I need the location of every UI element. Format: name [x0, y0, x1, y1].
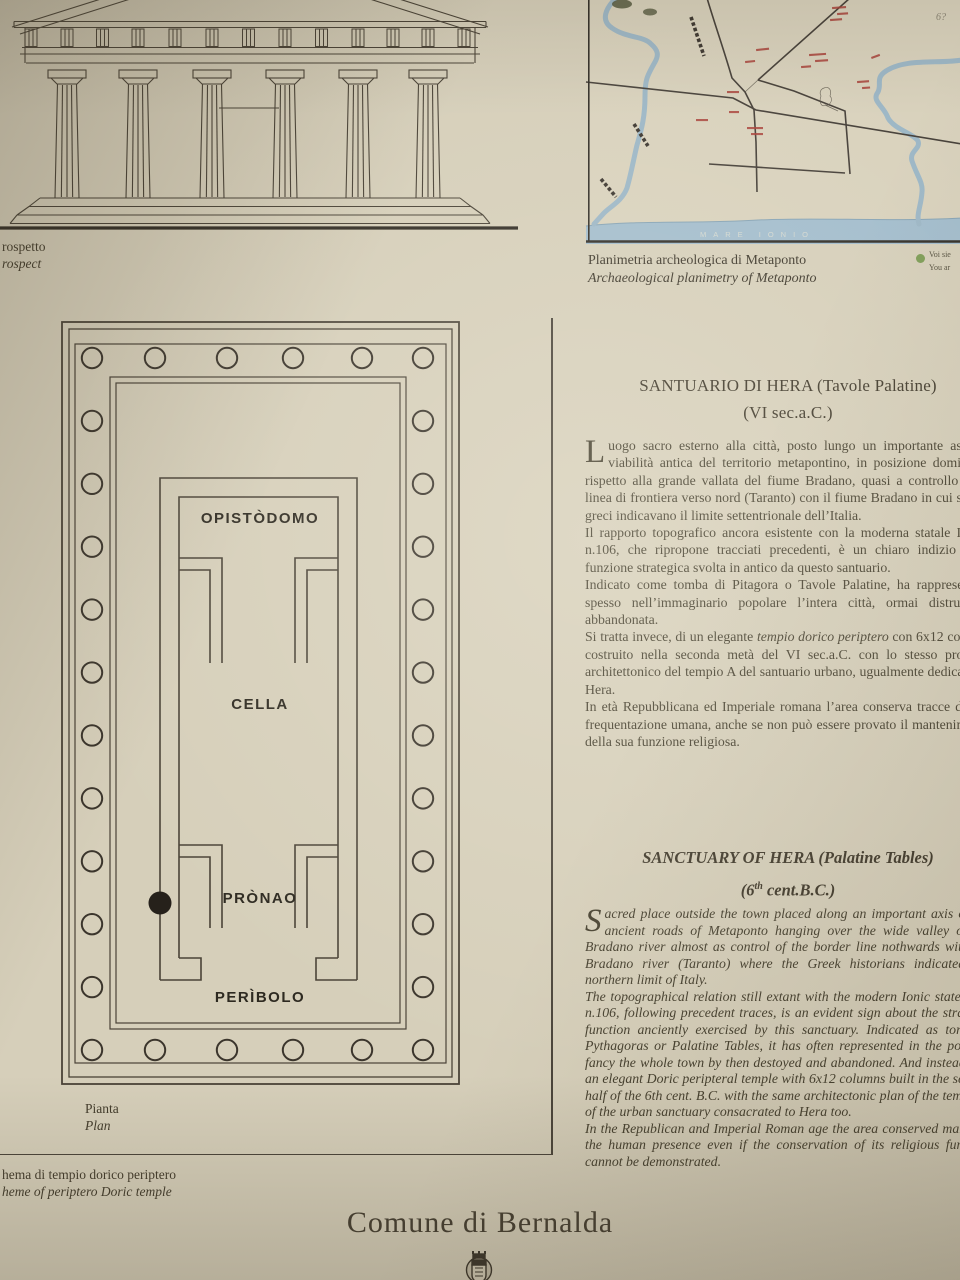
- column-flute: [206, 85, 207, 197]
- map-caption-it: Planimetria archeologica di Metaponto: [588, 252, 817, 270]
- legend-text-it: Voi sie: [929, 250, 951, 259]
- legend-text-en: You ar: [916, 263, 950, 272]
- title-superscript: th: [754, 881, 762, 892]
- triglyph: [132, 29, 144, 47]
- plan-caption-en: Plan: [85, 1117, 119, 1134]
- facade-caption-en: rospect: [2, 255, 46, 272]
- column-echinus: [342, 78, 374, 84]
- english-title-line1: SANCTUARY OF HERA (Palatine Tables): [585, 843, 960, 872]
- plan-column: [82, 977, 102, 997]
- plan-column: [413, 474, 433, 494]
- plan-column: [82, 474, 102, 494]
- column-abacus: [48, 70, 86, 78]
- plan-column: [82, 851, 102, 871]
- plan-column: [82, 914, 102, 934]
- column-flute: [279, 85, 280, 197]
- location-marker-dot: [149, 892, 172, 915]
- scheme-caption-it: hema di tempio dorico periptero: [2, 1166, 176, 1183]
- italian-paragraph: Si tratta invece, di un elegante tempio …: [585, 628, 960, 698]
- paragraph-text: uogo sacro esterno alla città, posto lun…: [585, 438, 960, 523]
- column-echinus: [269, 78, 301, 84]
- municipality-title: Comune di Bernalda: [0, 1206, 960, 1240]
- plan-column: [413, 725, 433, 745]
- doric-columns: [48, 70, 447, 198]
- plan-column: [413, 851, 433, 871]
- column-abacus: [119, 70, 157, 78]
- plan-column: [217, 348, 237, 368]
- column-abacus: [409, 70, 447, 78]
- red-site-label: [696, 119, 708, 121]
- column-flute: [132, 85, 133, 197]
- column-echinus: [196, 78, 228, 84]
- temple-facade-drawing: [0, 0, 525, 235]
- cornice: [14, 22, 486, 28]
- triglyph: [458, 29, 470, 47]
- italian-paragraph: Il rapporto topografico ancora esistente…: [585, 524, 960, 576]
- column-flute: [363, 85, 364, 197]
- english-paragraph: Sacred place outside the town placed alo…: [585, 906, 960, 989]
- plan-column: [82, 348, 102, 368]
- column-abacus: [193, 70, 231, 78]
- scheme-caption-en: heme of periptero Doric temple: [2, 1183, 176, 1200]
- triglyph-grooves: [247, 29, 251, 47]
- you-are-here-dot-icon: [916, 254, 925, 263]
- plan-column: [413, 1040, 433, 1060]
- triglyph-grooves: [136, 29, 140, 47]
- column-flute: [61, 85, 62, 197]
- column-echinus: [122, 78, 154, 84]
- column-flute: [217, 85, 218, 197]
- triglyph-grooves: [101, 29, 105, 47]
- plan-column: [82, 1040, 102, 1060]
- plan-column: [283, 348, 303, 368]
- plan-column: [413, 599, 433, 619]
- information-panel-photo: rospetto rospect: [0, 0, 960, 1280]
- italian-title-line1: SANTUARIO DI HERA (Tavole Palatine): [585, 372, 960, 399]
- map-caption: Planimetria archeologica di Metaponto Ar…: [588, 252, 817, 288]
- triglyph: [243, 29, 255, 47]
- english-text: Sacred place outside the town placed alo…: [585, 906, 960, 1170]
- triglyph-grooves: [391, 29, 395, 47]
- triglyph-grooves: [29, 29, 33, 47]
- plan-column: [82, 411, 102, 431]
- plan-column: [82, 788, 102, 808]
- title-text: cent.B.C.): [763, 881, 835, 900]
- column-flute: [352, 85, 353, 197]
- label-peribolo: PERÌBOLO: [215, 989, 305, 1006]
- paragraph-text: acred place outside the town placed alon…: [585, 906, 960, 987]
- archaeological-map: 6? MARE IONIO: [588, 0, 960, 246]
- triglyph-frieze: [25, 29, 470, 47]
- scheme-caption: hema di tempio dorico periptero heme of …: [2, 1166, 176, 1200]
- pencil-mark: 6?: [936, 12, 946, 23]
- triglyph: [169, 29, 181, 47]
- plan-column: [413, 537, 433, 557]
- column-flute: [422, 85, 423, 197]
- column-echinus: [51, 78, 83, 84]
- triglyph-grooves: [320, 29, 324, 47]
- english-title-line2: (6th cent.B.C.): [585, 872, 960, 905]
- drop-cap: L: [585, 437, 608, 466]
- plan-caption: Pianta Plan: [85, 1100, 119, 1134]
- triglyph-grooves: [65, 29, 69, 47]
- triglyph: [206, 29, 218, 47]
- triglyph-grooves: [173, 29, 177, 47]
- plan-caption-it: Pianta: [85, 1100, 119, 1117]
- crepidoma-steps: [10, 198, 490, 224]
- triglyph: [61, 29, 73, 47]
- italian-paragraph: Luogo sacro esterno alla città, posto lu…: [585, 437, 960, 524]
- label-opistodomo: OPISTÒDOMO: [201, 509, 319, 527]
- sea-label: MARE IONIO: [700, 230, 815, 239]
- triglyph: [387, 29, 399, 47]
- english-paragraph: The topographical relation still extant …: [585, 989, 960, 1121]
- triglyph: [352, 29, 364, 47]
- english-paragraph: In the Republican and Imperial Roman age…: [585, 1121, 960, 1171]
- plan-column: [82, 725, 102, 745]
- triglyph: [422, 29, 434, 47]
- triglyph: [97, 29, 109, 47]
- plan-column: [413, 411, 433, 431]
- plan-column: [413, 662, 433, 682]
- italian-paragraph: Indicato come tomba di Pitagora o Tavole…: [585, 576, 960, 628]
- red-site-label: [751, 133, 763, 135]
- plan-column: [145, 1040, 165, 1060]
- map-caption-en: Archaeological planimetry of Metaponto: [588, 270, 817, 288]
- temple-plan-drawing: OPISTÒDOMO CELLA PRÒNAO PERÌBOLO: [60, 318, 462, 1098]
- triglyph: [316, 29, 328, 47]
- italic-phrase: tempio dorico periptero: [757, 629, 889, 644]
- label-pronao: PRÒNAO: [223, 889, 298, 907]
- plan-column: [283, 1040, 303, 1060]
- italian-title: SANTUARIO DI HERA (Tavole Palatine) (VI …: [585, 372, 960, 426]
- bernalda-coat-of-arms: [462, 1251, 496, 1280]
- red-site-label: [747, 127, 763, 129]
- column-abacus: [266, 70, 304, 78]
- triglyph-grooves: [283, 29, 287, 47]
- italian-title-line2: (VI sec.a.C.): [585, 399, 960, 426]
- plan-column: [82, 599, 102, 619]
- triglyph-grooves: [356, 29, 360, 47]
- label-cella: CELLA: [231, 696, 289, 713]
- paragraph-text: Si tratta invece, di un elegante: [585, 629, 757, 644]
- plan-column: [413, 914, 433, 934]
- column-echinus: [412, 78, 444, 84]
- english-title: SANCTUARY OF HERA (Palatine Tables) (6th…: [585, 843, 960, 905]
- triglyph-grooves: [210, 29, 214, 47]
- plan-column: [82, 537, 102, 557]
- woods-patch: [643, 9, 657, 16]
- plan-column: [413, 348, 433, 368]
- triglyph: [279, 29, 291, 47]
- plan-column: [413, 788, 433, 808]
- red-site-label: [727, 91, 739, 93]
- red-site-label: [729, 111, 739, 113]
- facade-caption: rospetto rospect: [2, 238, 46, 272]
- column-flute: [143, 85, 144, 197]
- you-are-here-legend: Voi sie You ar: [916, 250, 951, 273]
- triglyph-grooves: [462, 29, 466, 47]
- plan-column: [413, 977, 433, 997]
- italian-paragraph: In età Repubblicana ed Imperiale romana …: [585, 698, 960, 750]
- column-flute: [290, 85, 291, 197]
- plan-column: [352, 348, 372, 368]
- title-text: (6: [741, 881, 755, 900]
- drop-cap: S: [585, 906, 605, 935]
- italian-text: Luogo sacro esterno alla città, posto lu…: [585, 437, 960, 750]
- plan-column: [352, 1040, 372, 1060]
- plan-column: [82, 662, 102, 682]
- vertical-divider: [551, 318, 553, 1155]
- column-abacus: [339, 70, 377, 78]
- plan-column: [217, 1040, 237, 1060]
- column-flute: [72, 85, 73, 197]
- triglyph-grooves: [426, 29, 430, 47]
- horizontal-divider: [0, 1154, 553, 1156]
- column-flute: [433, 85, 434, 197]
- plan-column: [145, 348, 165, 368]
- facade-caption-it: rospetto: [2, 238, 46, 255]
